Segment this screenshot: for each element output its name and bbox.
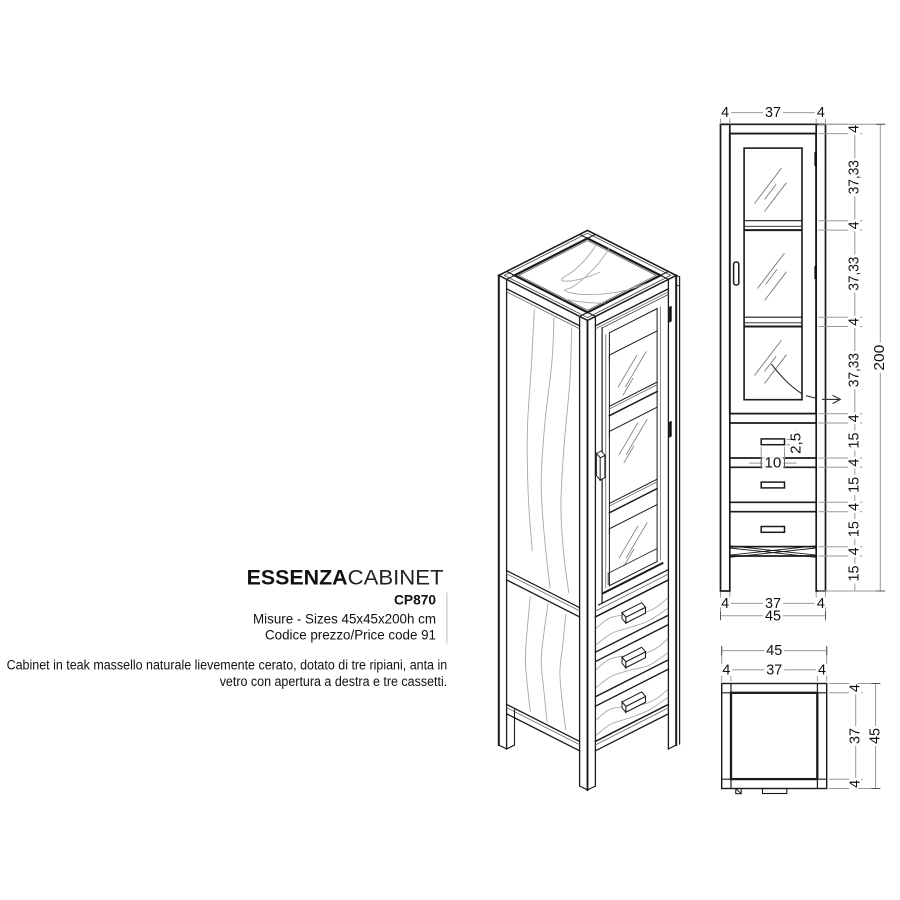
svg-text:4: 4 [846,221,863,229]
svg-text:4: 4 [846,684,863,692]
svg-text:CP870: CP870 [394,592,436,607]
svg-text:4: 4 [846,318,863,326]
svg-text:15: 15 [846,477,863,493]
svg-text:15: 15 [846,565,863,581]
svg-text:4: 4 [846,503,863,511]
svg-text:4: 4 [722,661,730,678]
svg-text:200: 200 [871,345,888,371]
svg-text:CABINET: CABINET [348,565,444,589]
svg-text:vetro con apertura a destra e: vetro con apertura a destra e tre casset… [220,674,448,690]
svg-text:4: 4 [846,459,863,467]
svg-text:4: 4 [846,414,863,422]
svg-text:45: 45 [765,607,781,624]
svg-text:15: 15 [846,521,863,537]
svg-text:4: 4 [846,547,863,555]
svg-text:37,33: 37,33 [846,160,863,194]
svg-text:Misure - Sizes 45x45x200h cm: Misure - Sizes 45x45x200h cm [253,612,436,627]
svg-text:37: 37 [846,728,863,744]
svg-text:10: 10 [764,455,781,472]
svg-text:4: 4 [721,595,729,612]
svg-text:2,5: 2,5 [788,433,805,454]
svg-text:Codice prezzo/Price code 91: Codice prezzo/Price code 91 [265,627,436,642]
svg-text:4: 4 [817,595,825,612]
svg-text:4: 4 [817,104,825,121]
svg-text:ESSENZA: ESSENZA [247,565,348,589]
svg-text:4: 4 [846,125,863,133]
svg-text:37,33: 37,33 [846,353,863,387]
svg-text:45: 45 [866,728,883,744]
svg-text:4: 4 [721,104,729,121]
svg-text:4: 4 [818,661,826,678]
svg-text:4: 4 [846,780,863,788]
svg-text:37: 37 [765,104,781,121]
svg-text:Cabinet in teak massello natur: Cabinet in teak massello naturale lievem… [7,658,448,674]
svg-text:37,33: 37,33 [846,257,863,291]
svg-text:15: 15 [846,432,863,448]
svg-text:37: 37 [766,661,782,678]
svg-text:45: 45 [766,642,782,659]
